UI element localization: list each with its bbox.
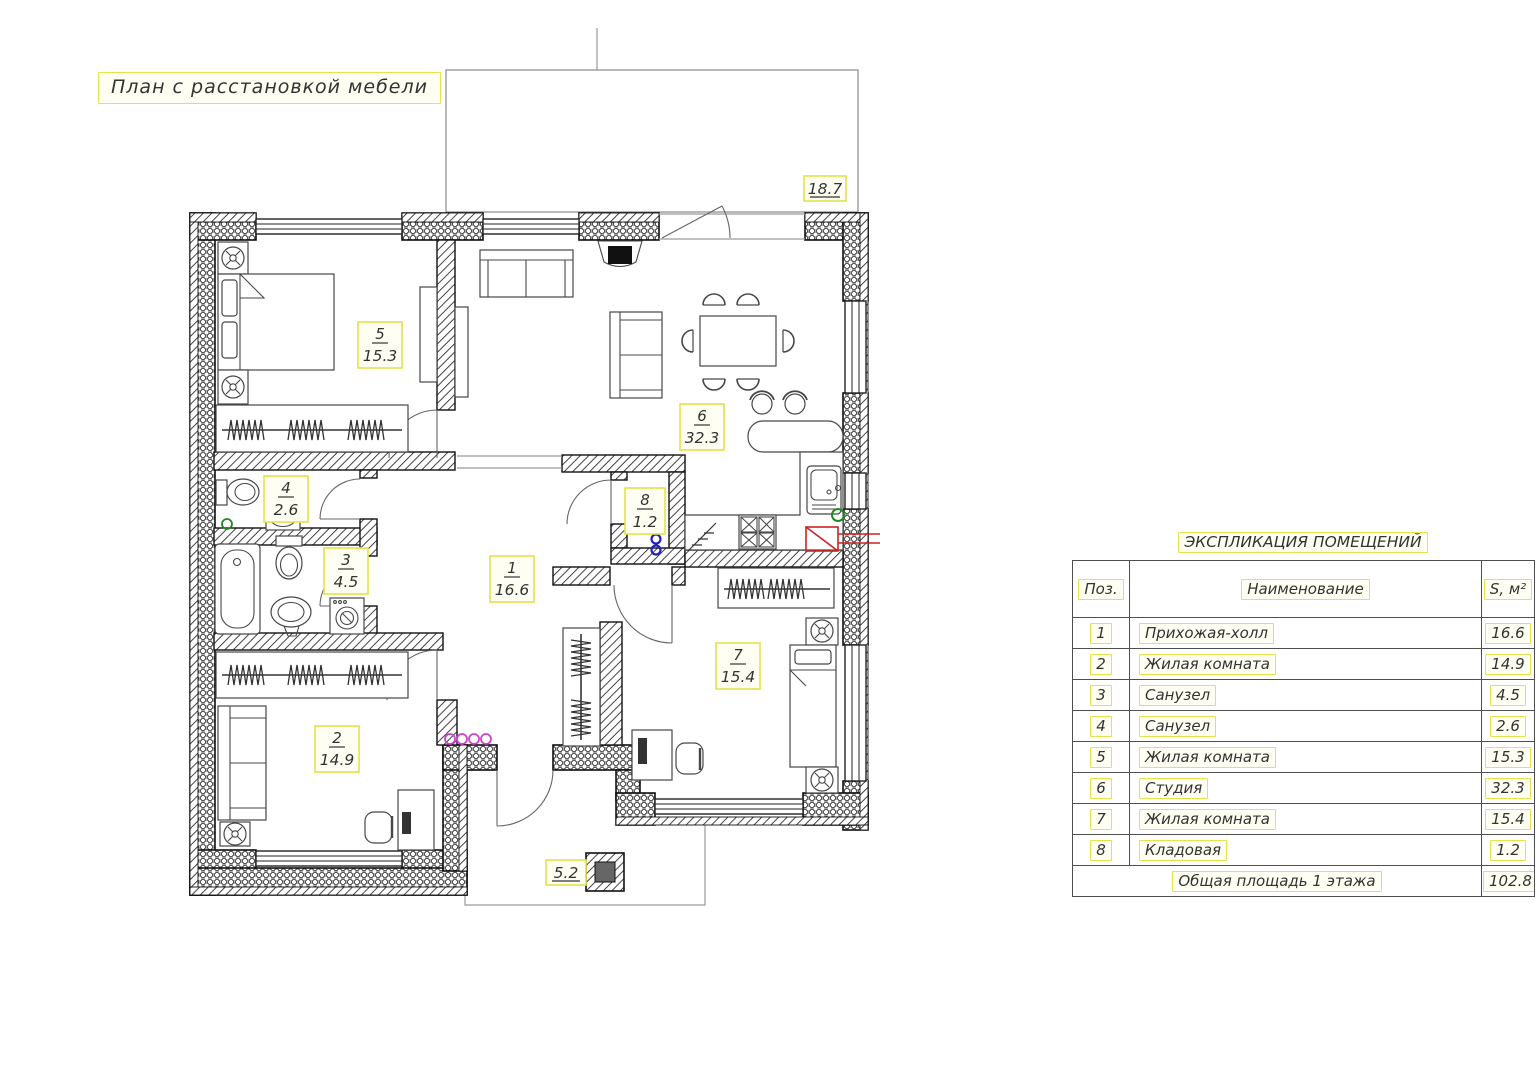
room-label-6: 6 32.3 [680, 404, 724, 450]
table-row: 8 Кладовая 1.2 [1073, 835, 1535, 866]
kitchen-sink [807, 466, 841, 514]
svg-text:18.7: 18.7 [808, 180, 843, 198]
toilet-room3 [276, 536, 302, 579]
bar-counter [748, 421, 843, 452]
stove [739, 515, 776, 549]
toilet-room4 [216, 479, 259, 505]
bathtub [215, 544, 260, 634]
col-header-area: S, м² [1482, 561, 1535, 618]
col-header-pos: Поз. [1073, 561, 1130, 618]
svg-text:15.4: 15.4 [721, 668, 756, 686]
svg-text:7: 7 [733, 646, 743, 664]
tv [608, 246, 632, 264]
pedestal-sink-room3 [271, 597, 311, 636]
col-header-name: Наименование [1130, 561, 1482, 618]
svg-text:6: 6 [697, 407, 707, 425]
room-label-1: 1 16.6 [490, 556, 534, 602]
porch-label: 5.2 [546, 860, 586, 885]
table-row: 1 Прихожая-холл 16.6 [1073, 618, 1535, 649]
schedule-header-row: Поз. Наименование S, м² [1073, 561, 1535, 618]
svg-text:3: 3 [341, 551, 351, 569]
room-label-2: 2 14.9 [315, 726, 359, 772]
room-label-5: 5 15.3 [358, 322, 402, 368]
table-row: 3 Санузел 4.5 [1073, 680, 1535, 711]
room-label-8: 8 1.2 [625, 488, 665, 534]
washing-machine [330, 598, 364, 634]
room5-furniture [216, 242, 437, 452]
room-label-3: 3 4.5 [324, 548, 368, 594]
total-label: Общая площадь 1 этажа [1073, 866, 1482, 897]
table-row: 7 Жилая комната 15.4 [1073, 804, 1535, 835]
schedule-title: ЭКСПЛИКАЦИЯ ПОМЕЩЕНИЙ [1072, 532, 1534, 553]
table-row: 4 Санузел 2.6 [1073, 711, 1535, 742]
table-row: 6 Студия 32.3 [1073, 773, 1535, 804]
room-label-7: 7 15.4 [716, 643, 760, 689]
svg-text:2.6: 2.6 [274, 501, 299, 519]
svg-text:1: 1 [507, 559, 517, 577]
svg-text:2: 2 [332, 729, 342, 747]
svg-text:32.3: 32.3 [685, 429, 720, 447]
dining-table [700, 316, 776, 366]
table-row: 5 Жилая комната 15.3 [1073, 742, 1535, 773]
drawing-title-text: План с расстановкой мебели [98, 72, 441, 104]
svg-text:15.3: 15.3 [363, 347, 398, 365]
terrace-label: 18.7 [804, 176, 846, 201]
schedule-total-row: Общая площадь 1 этажа 102.8 [1073, 866, 1535, 897]
svg-text:16.6: 16.6 [495, 581, 530, 599]
svg-text:4: 4 [281, 479, 291, 497]
svg-text:4.5: 4.5 [334, 573, 359, 591]
schedule-table: Поз. Наименование S, м² 1 Прихожая-холл … [1072, 560, 1535, 897]
svg-text:5: 5 [375, 325, 385, 343]
room-schedule: ЭКСПЛИКАЦИЯ ПОМЕЩЕНИЙ Поз. Наименование … [1072, 532, 1534, 897]
svg-text:1.2: 1.2 [633, 513, 658, 531]
room6-furniture [455, 241, 880, 551]
chair-room2 [365, 812, 392, 843]
drawing-title: План с расстановкой мебели [98, 72, 441, 104]
svg-text:5.2: 5.2 [554, 864, 579, 882]
svg-text:8: 8 [640, 491, 650, 509]
table-row: 2 Жилая комната 14.9 [1073, 649, 1535, 680]
terrace-outline [446, 28, 858, 212]
svg-text:14.9: 14.9 [320, 751, 355, 769]
room-label-4: 4 2.6 [264, 476, 308, 522]
total-value: 102.8 [1482, 866, 1535, 897]
